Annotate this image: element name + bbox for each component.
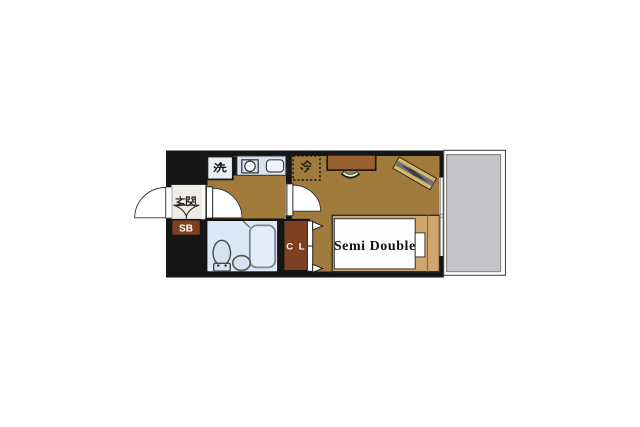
svg-text:SB: SB	[179, 224, 193, 235]
svg-text:Semi Double: Semi Double	[334, 239, 416, 254]
svg-text:C L: C L	[286, 241, 306, 252]
